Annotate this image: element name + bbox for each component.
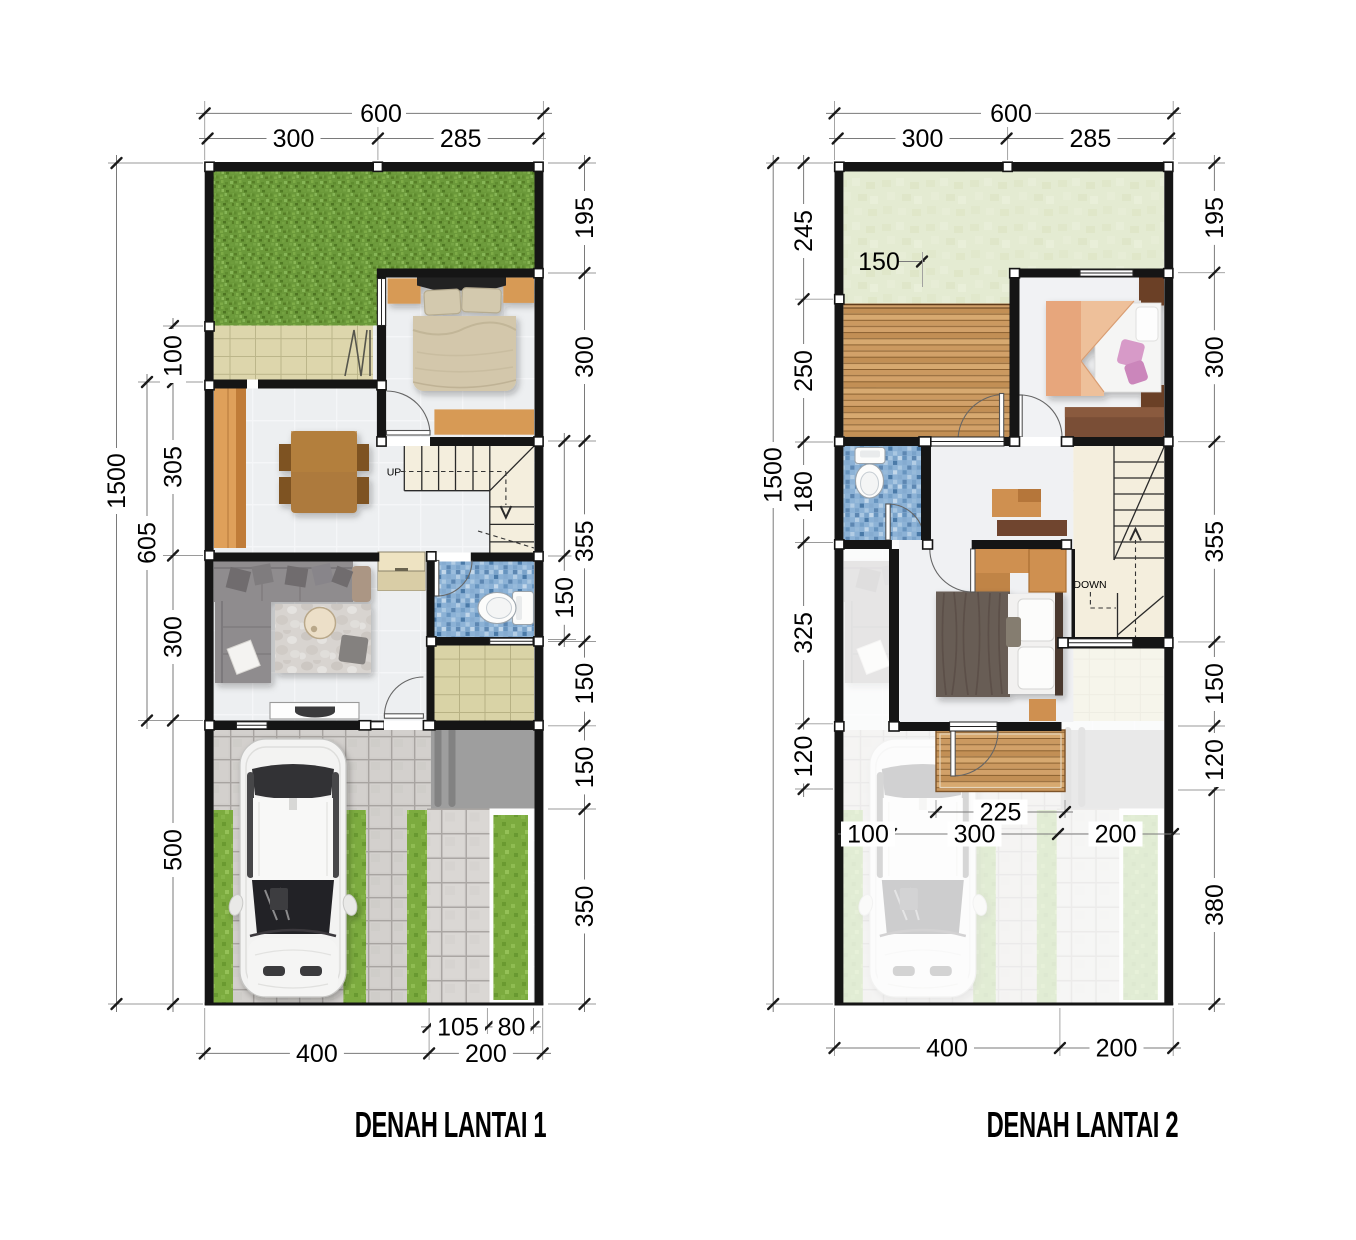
svg-text:300: 300 bbox=[902, 125, 944, 153]
svg-text:355: 355 bbox=[571, 520, 599, 562]
svg-text:105: 105 bbox=[437, 1013, 479, 1041]
svg-text:400: 400 bbox=[296, 1040, 338, 1068]
svg-text:355: 355 bbox=[1201, 521, 1229, 563]
svg-text:150: 150 bbox=[571, 663, 599, 705]
svg-text:500: 500 bbox=[160, 829, 188, 871]
svg-text:600: 600 bbox=[360, 100, 402, 128]
svg-text:300: 300 bbox=[954, 821, 996, 849]
svg-text:300: 300 bbox=[273, 125, 315, 153]
svg-text:200: 200 bbox=[1096, 1035, 1138, 1063]
svg-text:350: 350 bbox=[571, 886, 599, 928]
svg-text:300: 300 bbox=[160, 616, 188, 658]
svg-text:195: 195 bbox=[571, 197, 599, 239]
svg-text:380: 380 bbox=[1201, 884, 1229, 926]
svg-text:200: 200 bbox=[465, 1040, 507, 1068]
svg-text:180: 180 bbox=[790, 471, 818, 513]
svg-text:150: 150 bbox=[571, 747, 599, 789]
svg-text:100: 100 bbox=[160, 335, 188, 377]
svg-text:DOWN: DOWN bbox=[1073, 579, 1106, 591]
svg-text:150: 150 bbox=[551, 577, 579, 619]
svg-text:600: 600 bbox=[990, 100, 1032, 128]
svg-text:200: 200 bbox=[1095, 821, 1137, 849]
svg-text:300: 300 bbox=[571, 336, 599, 378]
svg-text:285: 285 bbox=[440, 125, 482, 153]
svg-text:120: 120 bbox=[790, 736, 818, 778]
svg-text:250: 250 bbox=[790, 350, 818, 392]
svg-text:195: 195 bbox=[1201, 197, 1229, 239]
svg-text:DENAH LANTAI 2: DENAH LANTAI 2 bbox=[987, 1105, 1179, 1145]
svg-text:605: 605 bbox=[134, 522, 162, 564]
svg-text:325: 325 bbox=[790, 612, 818, 654]
svg-text:1500: 1500 bbox=[103, 453, 131, 509]
svg-text:100: 100 bbox=[847, 821, 889, 849]
svg-text:120: 120 bbox=[1201, 739, 1229, 781]
svg-text:400: 400 bbox=[926, 1035, 968, 1063]
svg-text:300: 300 bbox=[1201, 336, 1229, 378]
svg-text:285: 285 bbox=[1070, 125, 1112, 153]
svg-text:245: 245 bbox=[790, 210, 818, 252]
svg-text:305: 305 bbox=[160, 446, 188, 488]
svg-text:150: 150 bbox=[858, 248, 900, 276]
svg-text:UP: UP bbox=[387, 467, 402, 479]
svg-text:150: 150 bbox=[1201, 663, 1229, 705]
svg-text:DENAH LANTAI 1: DENAH LANTAI 1 bbox=[355, 1105, 547, 1145]
svg-text:1500: 1500 bbox=[760, 447, 788, 503]
svg-text:80: 80 bbox=[498, 1013, 526, 1041]
